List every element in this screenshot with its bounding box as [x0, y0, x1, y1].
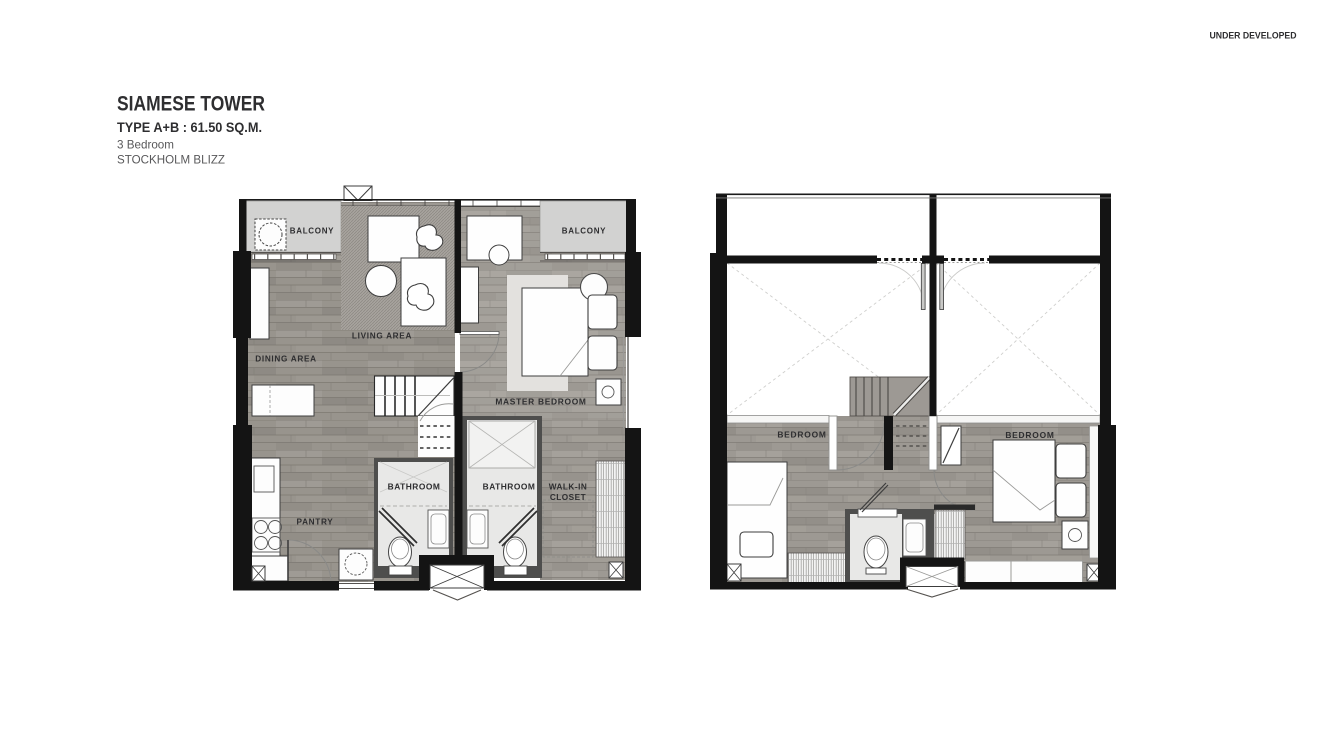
svg-text:MASTER BEDROOM: MASTER BEDROOM	[495, 397, 586, 407]
svg-text:BALCONY: BALCONY	[290, 227, 334, 236]
svg-text:LIVING AREA: LIVING AREA	[352, 332, 412, 341]
svg-text:STOCKHOLM BLIZZ: STOCKHOLM BLIZZ	[117, 155, 225, 167]
svg-text:WALK-IN: WALK-IN	[549, 483, 588, 492]
svg-text:BEDROOM: BEDROOM	[777, 430, 826, 440]
svg-text:BALCONY: BALCONY	[562, 227, 606, 236]
svg-text:BATHROOM: BATHROOM	[483, 482, 536, 492]
svg-text:DINING AREA: DINING AREA	[255, 355, 317, 364]
svg-text:CLOSET: CLOSET	[550, 493, 586, 502]
svg-text:BEDROOM: BEDROOM	[1005, 430, 1054, 440]
svg-text:TYPE A+B : 61.50 SQ.M.: TYPE A+B : 61.50 SQ.M.	[117, 120, 262, 135]
svg-text:SIAMESE TOWER: SIAMESE TOWER	[117, 93, 265, 116]
svg-text:PANTRY: PANTRY	[297, 518, 334, 527]
svg-text:3 Bedroom: 3 Bedroom	[117, 138, 174, 152]
svg-text:BATHROOM: BATHROOM	[388, 482, 441, 492]
svg-text:UNDER DEVELOPED: UNDER DEVELOPED	[1210, 31, 1297, 41]
